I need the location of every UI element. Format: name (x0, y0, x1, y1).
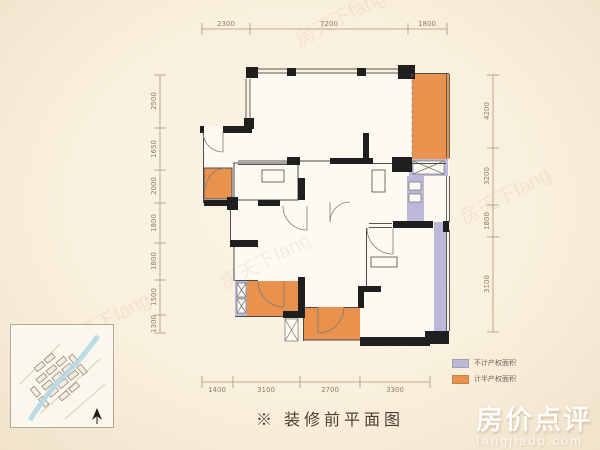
dim-label: 1800 (150, 252, 158, 270)
balcony-half-area (412, 74, 449, 159)
bedroom-bay-half-area (247, 281, 299, 316)
dim-label: 1800 (150, 214, 158, 232)
plan-caption: ※ 装修前平面图 (60, 406, 600, 430)
legend: 不计产权面积 计半产权面积 (452, 358, 516, 390)
dim-label: 1300 (150, 315, 158, 333)
legend-label: 计半产权面积 (474, 374, 516, 384)
storage-half-area (204, 168, 232, 199)
legend-swatch-orange (452, 375, 469, 384)
dim-label: 2000 (150, 177, 158, 195)
dim-label: 3100 (257, 386, 275, 394)
dim-label: 3300 (386, 386, 404, 394)
no-area-strip-right (434, 222, 447, 341)
dim-label: 3100 (483, 275, 491, 293)
dim-label: 2500 (150, 92, 158, 110)
dim-label: 4200 (483, 102, 491, 120)
legend-swatch-purple (452, 359, 469, 368)
dim-label: 1400 (208, 386, 226, 394)
dim-label: 2300 (217, 20, 235, 28)
dim-label: 3200 (483, 167, 491, 185)
dim-label: 7200 (320, 20, 338, 28)
dim-label: 1800 (418, 20, 436, 28)
dim-label: 1800 (483, 212, 491, 230)
legend-label: 不计产权面积 (474, 358, 516, 368)
legend-item-no-area: 不计产权面积 (452, 358, 516, 368)
dim-label: 1500 (150, 288, 158, 306)
floorplan-page: 房天下fang 房天下fang 房天下fang 房天下fang (0, 0, 600, 450)
legend-item-half-area: 计半产权面积 (452, 374, 516, 384)
dim-label: 1650 (150, 140, 158, 158)
south-balcony-half-area (303, 307, 360, 340)
dim-label: 2700 (321, 386, 339, 394)
